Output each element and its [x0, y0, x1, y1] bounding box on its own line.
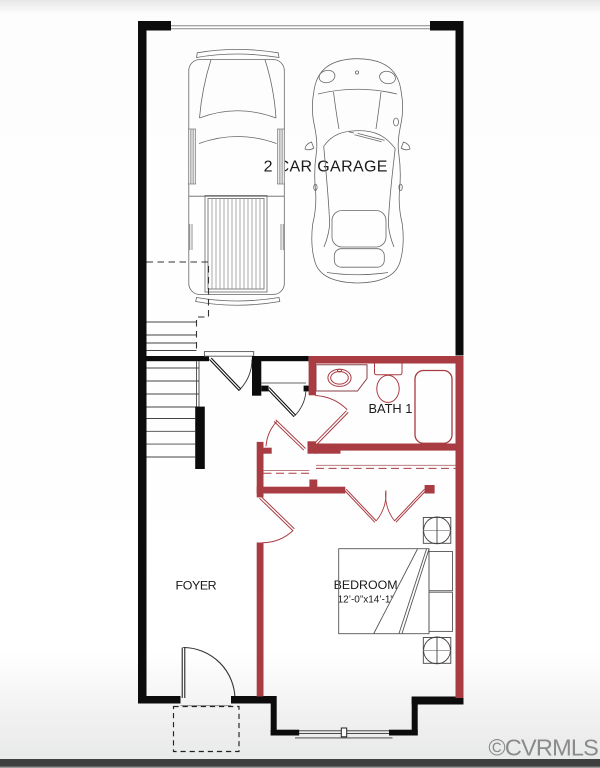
- svg-text:©CVRMLS: ©CVRMLS: [488, 735, 598, 761]
- svg-text:FOYER: FOYER: [176, 578, 217, 592]
- svg-text:BEDROOM: BEDROOM: [334, 578, 398, 592]
- svg-text:12’-0”x14’-1”: 12’-0”x14’-1”: [338, 595, 394, 606]
- svg-text:BATH 1: BATH 1: [368, 401, 412, 416]
